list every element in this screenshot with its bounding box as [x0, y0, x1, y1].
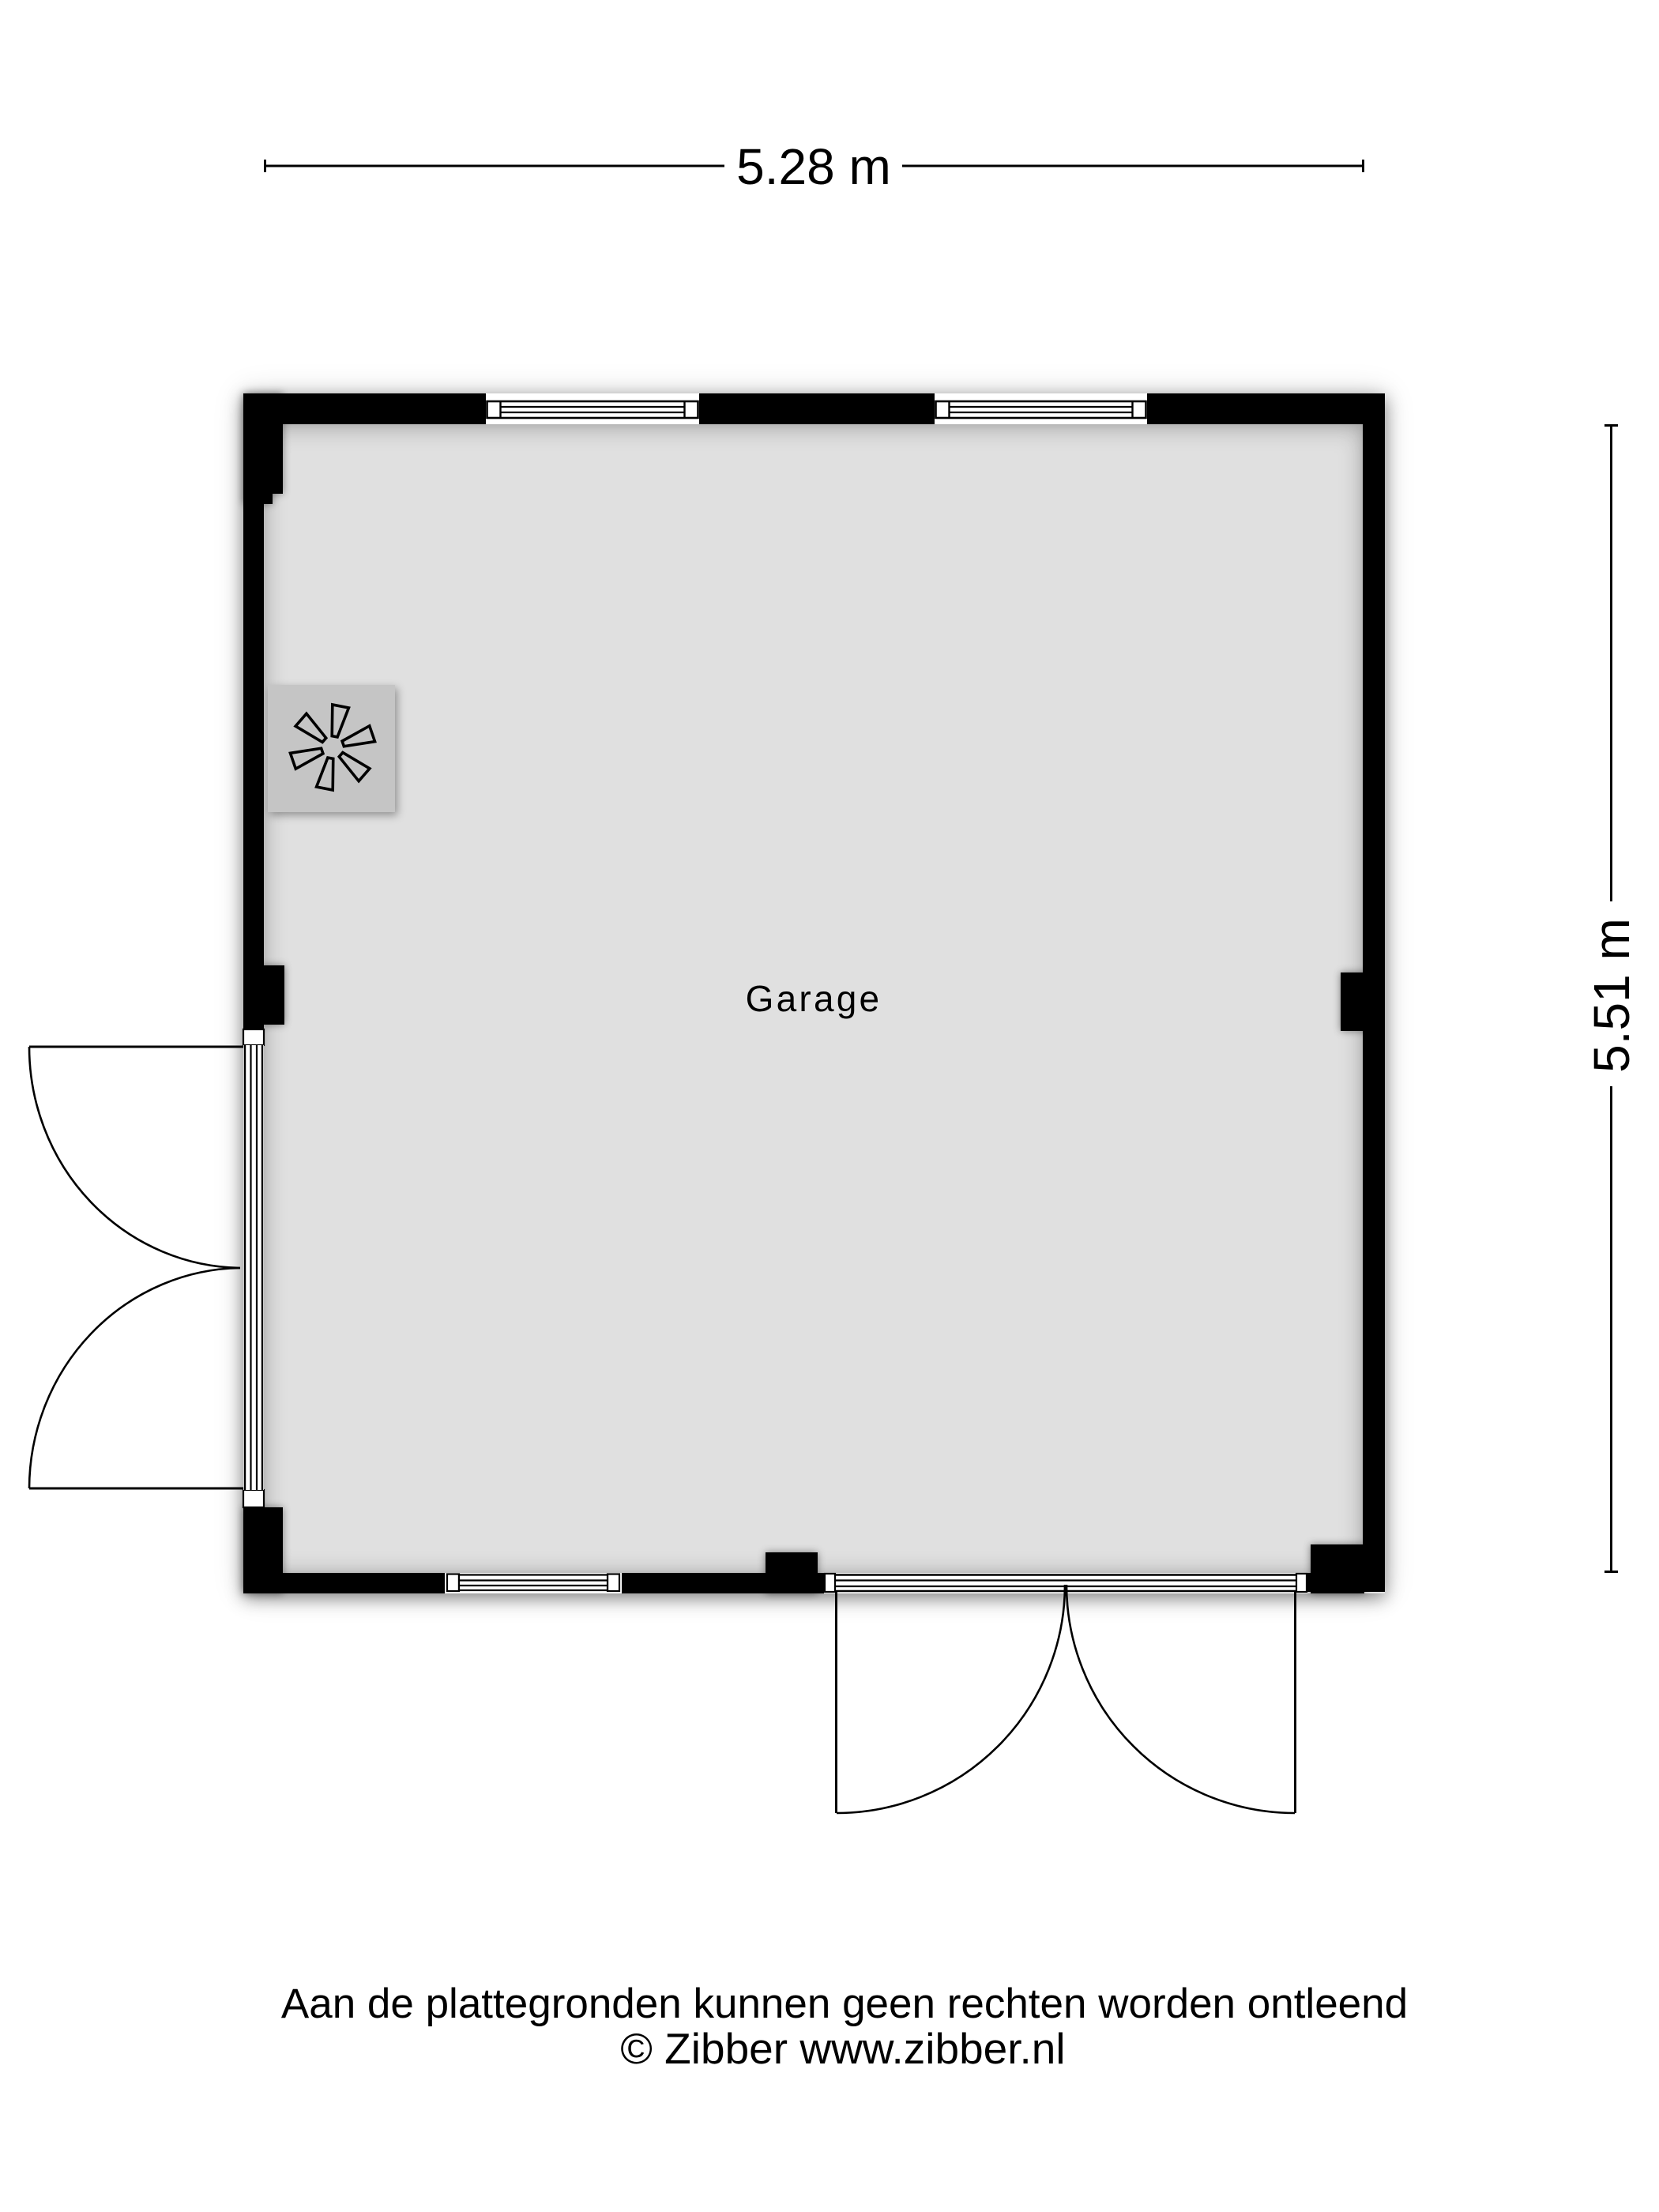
- svg-text:Aan de plattegronden kunnen ge: Aan de plattegronden kunnen geen rechten…: [281, 1981, 1408, 2027]
- svg-text:Garage: Garage: [746, 978, 882, 1019]
- svg-text:5.28 m: 5.28 m: [736, 138, 891, 195]
- svg-text:© Zibber www.zibber.nl: © Zibber www.zibber.nl: [620, 2024, 1065, 2073]
- svg-text:5.51 m: 5.51 m: [1583, 918, 1640, 1073]
